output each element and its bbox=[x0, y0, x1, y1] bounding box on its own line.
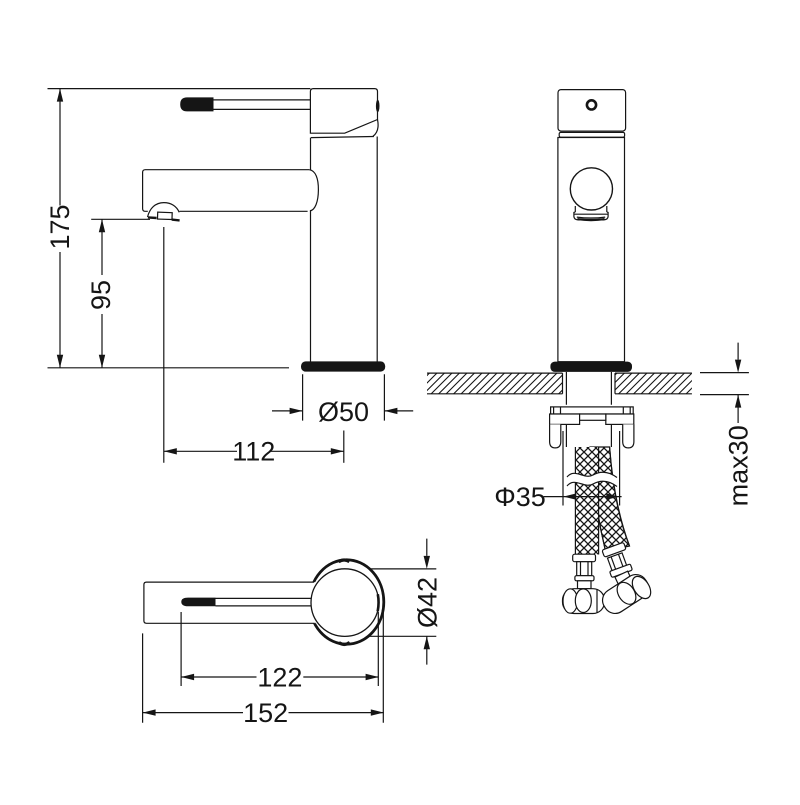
svg-text:Ø50: Ø50 bbox=[318, 397, 369, 427]
svg-text:max30: max30 bbox=[724, 425, 754, 506]
svg-text:122: 122 bbox=[257, 662, 302, 692]
svg-text:Φ35: Φ35 bbox=[494, 482, 546, 512]
svg-text:95: 95 bbox=[86, 280, 116, 310]
svg-text:Ø42: Ø42 bbox=[412, 577, 442, 628]
svg-text:152: 152 bbox=[243, 698, 288, 728]
svg-text:112: 112 bbox=[232, 437, 275, 467]
svg-text:175: 175 bbox=[45, 204, 75, 249]
